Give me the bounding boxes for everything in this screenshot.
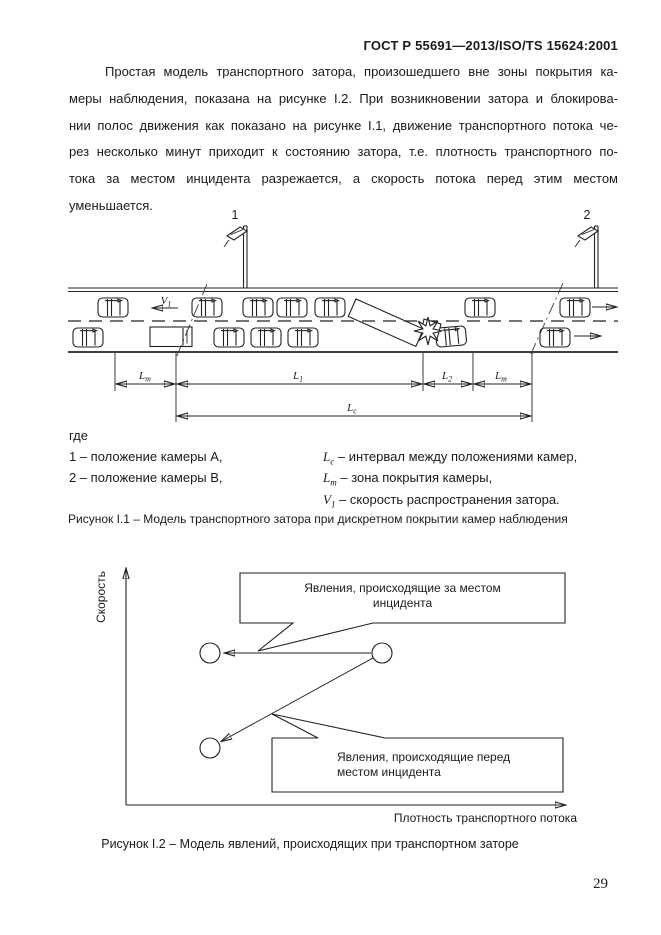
x-axis-label: Плотность транспортного потока [377,811,577,825]
page-number: 29 [560,876,608,893]
camera-2-icon [575,226,598,288]
dim-label-lm-left: Lm [138,370,151,384]
dim-label-lc: Lc [346,402,357,416]
callout-text-behind-incident: Явления, происходящие за местом инцидент… [245,581,560,610]
dim-label-l1: L1 [292,370,303,384]
van-icon [150,327,192,347]
legend-item-camera-a: 1 – положение камеры А, [69,449,223,464]
legend-item-v1: V1 – скорость распространения затора. [323,492,560,510]
car-icon [98,298,128,317]
callout-line: Явления, происходящие за местом [245,581,560,596]
figures-linework: 1 2 V1 [0,0,661,935]
car-icon [243,298,273,317]
legend-where: где [69,428,88,443]
car-icon [214,328,244,347]
legend-text: 1 – положение камеры А, [69,449,223,464]
legend-text: – интервал между положениями камер, [334,449,577,464]
dim-label-l2: L2 [441,370,452,384]
callout-text-before-incident: Явления, происходящие перед местом инцид… [337,750,557,779]
car-icon [465,298,495,317]
figure1-dimensions [115,353,532,422]
car-icon [288,328,318,347]
cars-bottom-lane [73,326,570,348]
state-point [200,738,220,758]
figure1-caption: Рисунок I.1 – Модель транспортного затор… [68,512,620,526]
transition-arrow-before [221,658,373,742]
dim-label-lm-right: Lm [494,370,507,384]
legend-item-lc: Lc – интервал между положениями камер, [323,449,577,467]
jackknifed-truck-icon [348,299,442,346]
car-icon [277,298,307,317]
state-point [372,643,392,663]
callout-line: Явления, происходящие перед [337,750,557,765]
camera-2-sightline [530,283,563,356]
symbol-lc: Lc [323,449,334,464]
figure2-caption: Рисунок I.2 – Модель явлений, происходящ… [68,837,552,851]
car-icon [315,298,345,317]
legend-text: – скорость распространения затора. [335,492,559,507]
symbol-v1: V1 [323,492,335,507]
gost-document-page: ГОСТ Р 55691—2013/ISO/TS 15624:2001 Прос… [0,0,661,935]
camera-2-label: 2 [584,208,591,222]
crash-star-icon [414,317,442,345]
legend-item-lm: Lm – зона покрытия камеры, [323,470,492,488]
cars-top-lane [98,298,590,317]
car-icon [251,328,281,347]
v1-speed-label: V1 [161,295,172,309]
camera-1-label: 1 [232,208,239,222]
callout-line: местом инцидента [337,765,557,780]
state-point [200,643,220,663]
car-icon [540,328,570,347]
car-icon [560,298,590,317]
legend-item-camera-b: 2 – положение камеры В, [69,470,223,485]
car-icon [73,328,103,347]
legend-text: 2 – положение камеры В, [69,470,223,485]
legend-text: – зона покрытия камеры, [337,470,492,485]
callout-line: инцидента [245,596,560,611]
car-icon [192,298,222,317]
figure2-state-points [200,643,392,758]
camera-1-icon [224,226,247,288]
symbol-lm: Lm [323,470,337,485]
y-axis-label: Скорость [94,557,108,637]
